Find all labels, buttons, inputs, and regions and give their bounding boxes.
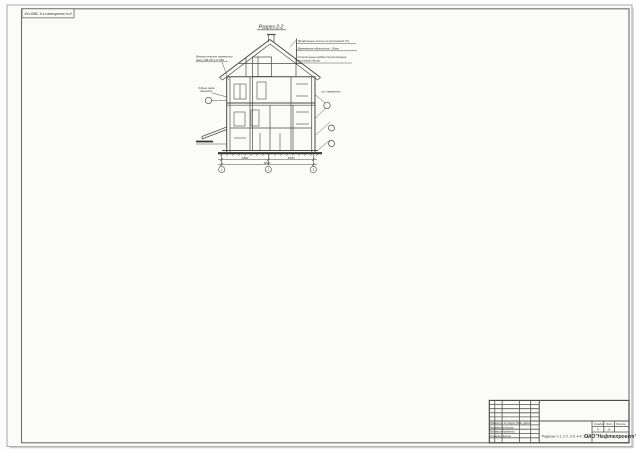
- svg-text:Юч-ВВС-6 к извещению т.д: Юч-ВВС-6 к извещению т.д: [24, 12, 71, 16]
- svg-text:Изм Кол.уч № докум. Подп. Дат: Изм Кол.уч № докум. Подп. Дата: [490, 421, 531, 425]
- svg-text:ОАО"Нефтепроект": ОАО"Нефтепроект": [584, 433, 636, 440]
- svg-text:(Анк.) МЕ-4Р-1-П.03Б: (Анк.) МЕ-4Р-1-П.03Б: [196, 58, 224, 62]
- svg-text:см. перемычки: см. перемычки: [322, 90, 342, 94]
- svg-text:Стадия: Стадия: [594, 422, 604, 426]
- svg-text:Разработал Котов: Разработал Котов: [490, 425, 514, 429]
- svg-text:Деревянная обрешетка - 30мм: Деревянная обрешетка - 30мм: [297, 46, 339, 50]
- svg-text:Утвердил Котов: Утвердил Котов: [490, 434, 512, 438]
- svg-text:Зенкодор: Зенкодор: [200, 89, 213, 93]
- svg-text:Проверил Курбатов: Проверил Курбатов: [490, 430, 515, 434]
- svg-text:Профильные листы по прогонам: Профильные листы по прогонам 0,7кг: [298, 39, 350, 43]
- svg-text:9000: 9000: [264, 161, 271, 165]
- svg-text:4500: 4500: [242, 156, 249, 160]
- svg-text:2: 2: [266, 168, 269, 172]
- svg-text:листовой обшив.: листовой обшив.: [297, 59, 321, 63]
- svg-text:Разрезы 1-1, 2-2, 3-3, 4-4, 5-: Разрезы 1-1, 2-2, 3-3, 4-4, 5-5: [542, 434, 589, 438]
- svg-text:Листов: Листов: [615, 422, 626, 426]
- svg-text:Лист: Лист: [605, 422, 614, 426]
- svg-text:4500: 4500: [288, 156, 295, 160]
- svg-text:Р: Р: [597, 428, 599, 432]
